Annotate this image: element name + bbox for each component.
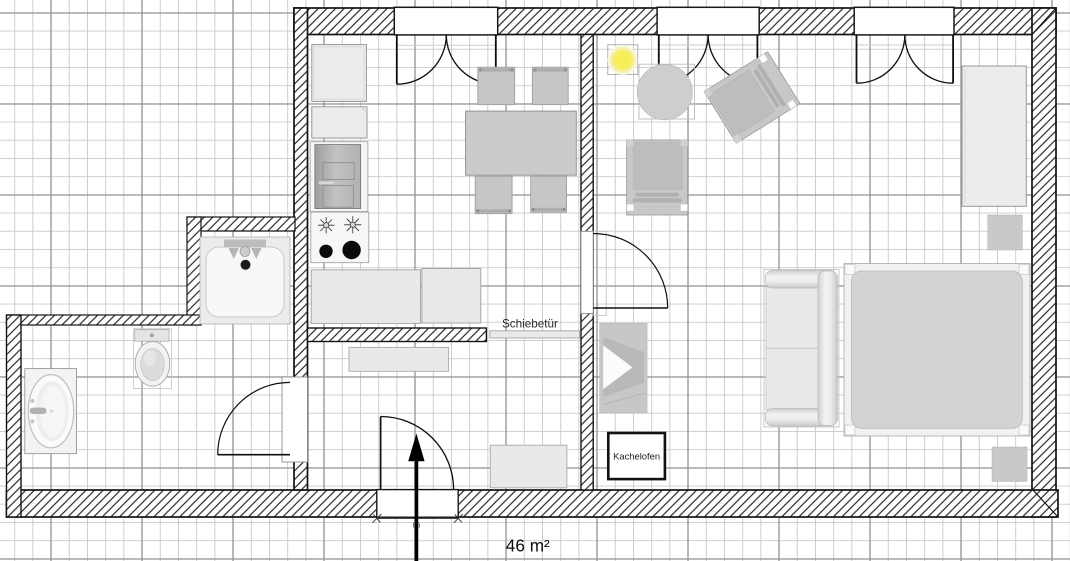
svg-text:Kachelofen: Kachelofen	[613, 450, 660, 461]
svg-text:46 m²: 46 m²	[506, 536, 550, 556]
svg-text:Schiebetür: Schiebetür	[502, 318, 558, 331]
